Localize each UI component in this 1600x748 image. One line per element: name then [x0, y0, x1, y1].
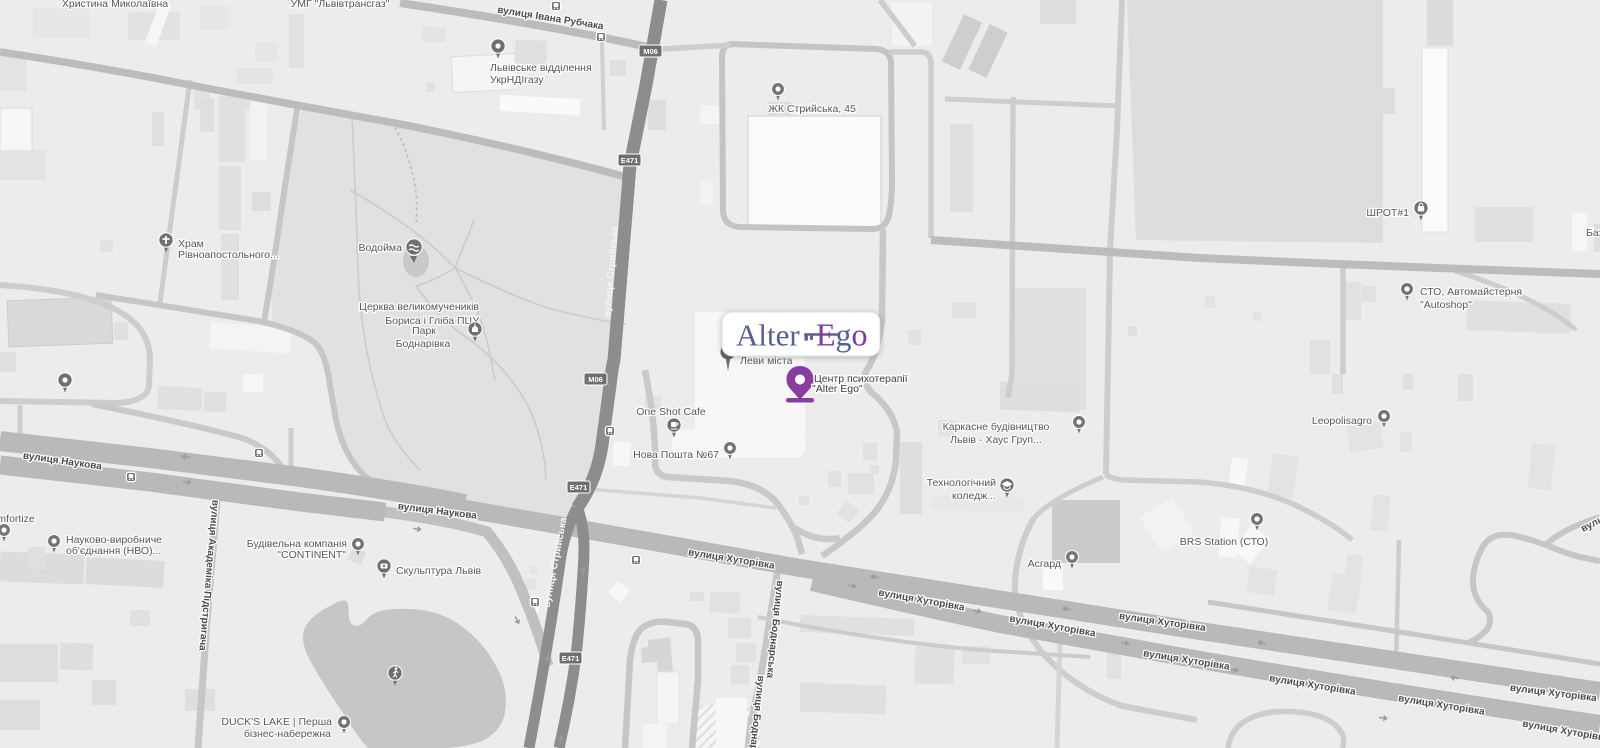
svg-text:"CONTINENT": "CONTINENT"	[277, 549, 346, 561]
svg-text:Водойма: Водойма	[358, 242, 402, 254]
svg-text:M06: M06	[588, 375, 603, 384]
svg-text:об'єднання (НВО)...: об'єднання (НВО)...	[66, 545, 161, 557]
svg-text:"Autoshop": "Autoshop"	[1420, 299, 1472, 311]
svg-text:Alter: Alter	[736, 318, 800, 353]
svg-text:One Shot Cafe: One Shot Cafe	[636, 406, 706, 418]
svg-text:Ego: Ego	[816, 317, 868, 353]
svg-text:СТО, Автомайстерня: СТО, Автомайстерня	[1420, 286, 1522, 298]
svg-text:DUCK'S LAKE | Перша: DUCK'S LAKE | Перша	[221, 716, 332, 728]
svg-text:Асгард: Асгард	[1028, 558, 1061, 570]
svg-text:Рівноапостольного...: Рівноапостольного...	[178, 249, 279, 261]
svg-text:BRS Station (СТО): BRS Station (СТО)	[1180, 536, 1268, 548]
svg-text:E471: E471	[570, 483, 588, 492]
svg-text:бізнес-набережна: бізнес-набережна	[244, 728, 331, 740]
svg-text:ЖК Стрийська, 45: ЖК Стрийська, 45	[768, 103, 856, 115]
svg-text:коледж...: коледж...	[952, 490, 996, 502]
svg-text:База: База	[1586, 227, 1600, 239]
svg-text:Парк: Парк	[412, 325, 436, 337]
svg-text:Львів - Хаус Груп...: Львів - Хаус Груп...	[950, 434, 1042, 446]
svg-text:Нова Пошта №67: Нова Пошта №67	[633, 449, 719, 461]
svg-text:"Alter Ego": "Alter Ego"	[812, 383, 863, 395]
svg-text:Львівське відділення: Львівське відділення	[490, 62, 592, 74]
svg-text:Леви міста: Леви міста	[740, 355, 793, 367]
svg-text:Скульптура Львів: Скульптура Львів	[396, 565, 482, 577]
svg-text:M06: M06	[643, 47, 658, 56]
svg-text:Comfortize: Comfortize	[0, 513, 35, 525]
svg-text:Церква великомучеників: Церква великомучеників	[359, 301, 479, 313]
svg-text:УкрНДІгазу: УкрНДІгазу	[490, 74, 544, 86]
svg-text:Христина Миколаївна: Христина Миколаївна	[62, 0, 168, 10]
svg-text:УМГ "Львівтрансгаз": УМГ "Львівтрансгаз"	[291, 0, 390, 10]
svg-text:Каркасне будівництво: Каркасне будівництво	[943, 421, 1050, 433]
svg-text:ШРОТ#1: ШРОТ#1	[1366, 207, 1409, 219]
svg-text:Leopolisagro: Leopolisagro	[1312, 415, 1372, 427]
svg-text:Технологічний: Технологічний	[927, 477, 996, 489]
svg-text:E471: E471	[562, 654, 580, 663]
svg-text:Боднарівка: Боднарівка	[396, 338, 451, 350]
svg-text:E471: E471	[621, 156, 639, 165]
